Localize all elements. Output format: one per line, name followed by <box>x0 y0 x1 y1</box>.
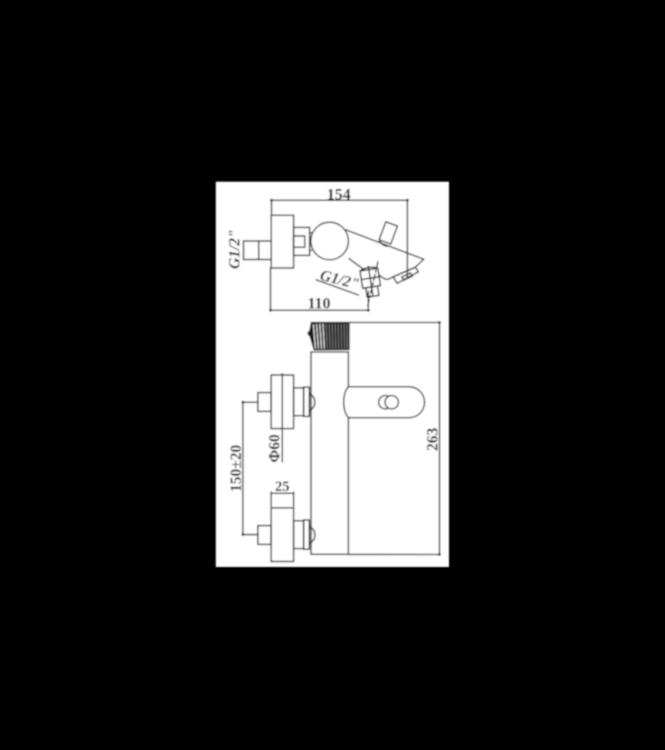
svg-text:Φ60: Φ60 <box>266 434 283 463</box>
svg-text:25: 25 <box>275 479 290 495</box>
svg-text:150±20: 150±20 <box>228 445 245 493</box>
svg-text:G1/2": G1/2" <box>227 229 244 269</box>
svg-text:154: 154 <box>327 187 351 204</box>
svg-text:110: 110 <box>307 296 330 313</box>
svg-text:263: 263 <box>424 428 441 452</box>
